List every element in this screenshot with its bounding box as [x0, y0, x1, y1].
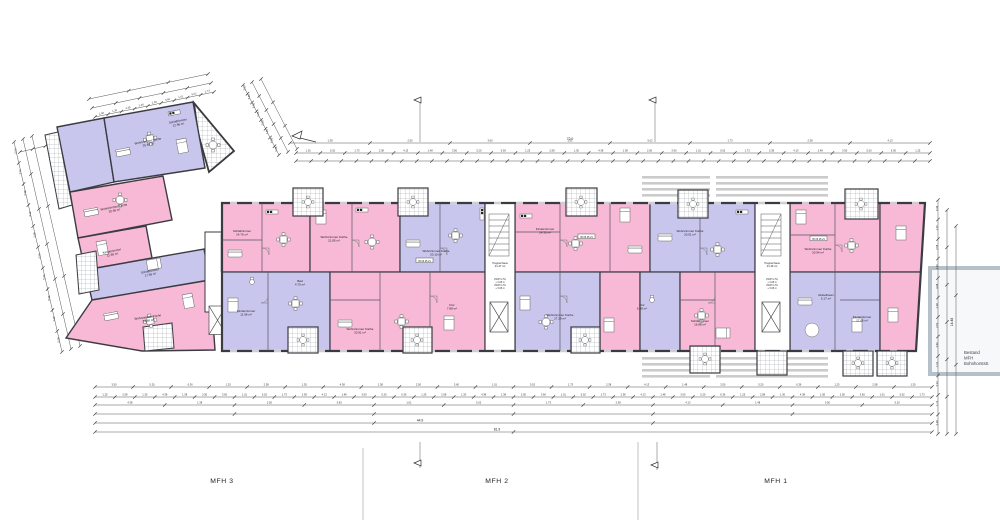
svg-text:3.60: 3.60 — [935, 342, 939, 348]
svg-text:1.01: 1.01 — [406, 401, 412, 405]
svg-text:3.50: 3.50 — [242, 85, 246, 91]
svg-text:6.36: 6.36 — [935, 205, 939, 211]
svg-text:1.38: 1.38 — [378, 383, 384, 387]
svg-text:2.50: 2.50 — [521, 393, 527, 397]
svg-text:6.36: 6.36 — [796, 383, 802, 387]
svg-text:1.73: 1.73 — [935, 400, 939, 406]
svg-text:3.50: 3.50 — [111, 383, 117, 387]
svg-text:2.50: 2.50 — [840, 393, 846, 397]
svg-text:05 06 05 21: 05 06 05 21 — [580, 236, 593, 239]
svg-text:1.38: 1.38 — [327, 139, 333, 143]
unit-pink — [600, 272, 640, 351]
svg-text:5.20: 5.20 — [150, 383, 156, 387]
svg-text:2.58: 2.58 — [760, 393, 766, 397]
svg-text:1.38: 1.38 — [623, 149, 629, 153]
existing-building-bestand: Bestand MFH Bohnhorststr. — [930, 268, 1000, 374]
svg-text:4.13: 4.13 — [887, 139, 893, 143]
svg-text:05 06 05 21: 05 06 05 21 — [812, 238, 825, 241]
svg-text:2.58: 2.58 — [441, 393, 447, 397]
svg-text:1.48: 1.48 — [818, 149, 824, 153]
svg-text:2WKT-LTG+ 3,08 m2WKT-LTG+ 3,08: 2WKT-LTG+ 3,08 m2WKT-LTG+ 3,08 m — [494, 278, 506, 290]
svg-text:2.38: 2.38 — [23, 190, 27, 196]
svg-text:3.50: 3.50 — [842, 149, 848, 153]
svg-text:5.02: 5.02 — [647, 139, 653, 143]
svg-text:1.73: 1.73 — [601, 393, 607, 397]
bestand-label-line2: MFH — [964, 356, 973, 361]
svg-text:5.02: 5.02 — [720, 149, 726, 153]
unit-pink — [680, 272, 755, 351]
svg-text:1.25: 1.25 — [52, 316, 56, 322]
svg-text:6.36: 6.36 — [891, 149, 897, 153]
svg-text:4.13: 4.13 — [793, 149, 799, 153]
svg-text:1.73: 1.73 — [745, 149, 751, 153]
svg-text:2.38: 2.38 — [379, 149, 385, 153]
svg-text:1.25: 1.25 — [102, 393, 108, 397]
svg-text:5.20: 5.20 — [700, 393, 706, 397]
svg-text:1.73: 1.73 — [354, 149, 360, 153]
unit-lavender — [104, 102, 205, 182]
balcony — [757, 351, 787, 375]
svg-text:4.38: 4.38 — [598, 149, 604, 153]
bestand-label-line1: Bestand — [964, 350, 980, 355]
svg-text:1.73: 1.73 — [568, 383, 574, 387]
svg-text:1.01: 1.01 — [242, 393, 248, 397]
svg-text:1.73: 1.73 — [727, 139, 733, 143]
svg-text:5.20: 5.20 — [381, 393, 387, 397]
svg-text:1.25: 1.25 — [915, 149, 921, 153]
svg-text:1.48: 1.48 — [428, 149, 434, 153]
svg-text:2.58: 2.58 — [260, 120, 264, 126]
svg-text:1.73: 1.73 — [18, 169, 22, 175]
unit-lavender — [640, 272, 680, 351]
svg-text:4.13: 4.13 — [644, 383, 650, 387]
svg-text:1.01: 1.01 — [935, 361, 939, 367]
svg-text:1.30: 1.30 — [910, 383, 916, 387]
svg-text:2.38: 2.38 — [935, 420, 939, 426]
floor-plan-canvas: Bestand MFH Bohnhorststr. 1.382.503.601. — [0, 0, 1000, 523]
svg-text:4.13: 4.13 — [641, 393, 647, 397]
svg-text:1.25: 1.25 — [525, 149, 531, 153]
svg-text:3.50: 3.50 — [362, 393, 368, 397]
svg-text:5.02: 5.02 — [476, 401, 482, 405]
svg-text:1.01: 1.01 — [561, 393, 567, 397]
svg-text:1.38: 1.38 — [935, 303, 939, 309]
svg-text:1.01: 1.01 — [306, 149, 312, 153]
svg-text:1.48: 1.48 — [682, 383, 688, 387]
svg-text:1.30: 1.30 — [265, 129, 269, 135]
svg-text:1.25: 1.25 — [421, 393, 427, 397]
svg-text:3.50: 3.50 — [680, 393, 686, 397]
svg-text:4.38: 4.38 — [269, 137, 273, 143]
svg-text:4.13: 4.13 — [685, 401, 691, 405]
dim-total-bottom-2: 81.9 — [494, 428, 501, 432]
north-arrow — [292, 131, 316, 142]
svg-text:1.30: 1.30 — [302, 383, 308, 387]
svg-text:2.50: 2.50 — [935, 322, 939, 328]
svg-text:5.20: 5.20 — [867, 149, 873, 153]
balcony — [76, 251, 99, 294]
svg-text:2.50: 2.50 — [407, 139, 413, 143]
svg-text:4.13: 4.13 — [322, 393, 328, 397]
svg-text:1.48: 1.48 — [660, 393, 666, 397]
dim-total-bottom-1: 44.9 — [417, 419, 424, 423]
svg-text:1.01: 1.01 — [492, 383, 498, 387]
svg-text:6.36: 6.36 — [501, 149, 507, 153]
svg-text:5.02: 5.02 — [935, 381, 939, 387]
svg-text:1.25: 1.25 — [834, 383, 840, 387]
svg-text:1.38: 1.38 — [820, 393, 826, 397]
svg-text:5.02: 5.02 — [262, 393, 268, 397]
svg-text:5.02: 5.02 — [900, 393, 906, 397]
dim-total-right: 14.48 — [950, 318, 954, 327]
svg-text:1.01: 1.01 — [696, 149, 702, 153]
svg-text:4.38: 4.38 — [340, 383, 346, 387]
svg-text:1.38: 1.38 — [182, 393, 188, 397]
svg-text:3.60: 3.60 — [337, 401, 343, 405]
svg-text:4.38: 4.38 — [481, 393, 487, 397]
svg-text:1.38: 1.38 — [501, 393, 507, 397]
svg-text:6.36: 6.36 — [401, 393, 407, 397]
svg-text:3.60: 3.60 — [454, 383, 460, 387]
svg-text:3.60: 3.60 — [487, 139, 493, 143]
svg-text:4.38: 4.38 — [127, 401, 133, 405]
svg-text:1.38: 1.38 — [197, 401, 203, 405]
svg-text:2.38: 2.38 — [621, 393, 627, 397]
svg-text:5.20: 5.20 — [42, 274, 46, 280]
svg-text:4.38: 4.38 — [162, 393, 168, 397]
svg-text:3.60: 3.60 — [222, 393, 228, 397]
label-mfh3: MFH 3 — [210, 478, 233, 485]
svg-text:1.48: 1.48 — [342, 393, 348, 397]
svg-text:2.38: 2.38 — [769, 149, 775, 153]
svg-text:2.38: 2.38 — [302, 393, 308, 397]
svg-text:2.38: 2.38 — [616, 401, 622, 405]
svg-text:3.60: 3.60 — [671, 149, 677, 153]
svg-text:1.25: 1.25 — [935, 225, 939, 231]
svg-text:2.50: 2.50 — [202, 393, 208, 397]
svg-text:1.25: 1.25 — [740, 393, 746, 397]
svg-text:1.73: 1.73 — [546, 401, 552, 405]
svg-text:3.60: 3.60 — [541, 393, 547, 397]
svg-text:05 06 05 21: 05 06 05 21 — [418, 260, 431, 263]
svg-text:6.36: 6.36 — [188, 383, 194, 387]
svg-text:6.36: 6.36 — [251, 102, 255, 108]
svg-text:6.36: 6.36 — [720, 393, 726, 397]
svg-text:2.58: 2.58 — [872, 383, 878, 387]
svg-text:2.38: 2.38 — [606, 383, 612, 387]
svg-text:2.58: 2.58 — [550, 149, 556, 153]
svg-text:1.25: 1.25 — [256, 111, 260, 117]
svg-text:1.30: 1.30 — [574, 149, 580, 153]
svg-text:2.58: 2.58 — [264, 383, 270, 387]
unit-pink — [880, 272, 921, 351]
svg-text:5.20: 5.20 — [895, 401, 901, 405]
svg-text:2.50: 2.50 — [416, 383, 422, 387]
svg-text:1.48: 1.48 — [755, 401, 761, 405]
svg-text:3.50: 3.50 — [825, 401, 831, 405]
svg-text:5.20: 5.20 — [476, 149, 482, 153]
svg-text:2.38: 2.38 — [807, 139, 813, 143]
svg-text:5.02: 5.02 — [330, 149, 336, 153]
svg-text:5.20: 5.20 — [247, 94, 251, 100]
svg-text:4.13: 4.13 — [403, 149, 409, 153]
dim-total-top: 72.0 — [567, 137, 574, 141]
svg-text:1.30: 1.30 — [780, 393, 786, 397]
svg-text:1.38: 1.38 — [274, 146, 278, 152]
svg-text:3.50: 3.50 — [452, 149, 458, 153]
svg-text:3.50: 3.50 — [720, 383, 726, 387]
label-mfh1: MFH 1 — [764, 478, 787, 485]
svg-text:1.48: 1.48 — [33, 232, 37, 238]
svg-text:4.38: 4.38 — [935, 283, 939, 289]
svg-text:6.36: 6.36 — [47, 295, 51, 301]
svg-text:4.38: 4.38 — [800, 393, 806, 397]
svg-text:2.58: 2.58 — [57, 337, 61, 343]
svg-text:1.30: 1.30 — [142, 393, 148, 397]
svg-text:2.58: 2.58 — [122, 393, 128, 397]
svg-text:3.60: 3.60 — [860, 393, 866, 397]
bestand-label-line3: Bohnhorststr. — [964, 361, 989, 366]
label-mfh2: MFH 2 — [485, 478, 508, 485]
svg-text:2.58: 2.58 — [935, 244, 939, 250]
svg-text:1.73: 1.73 — [282, 393, 288, 397]
svg-text:5.02: 5.02 — [13, 148, 17, 154]
svg-text:2.50: 2.50 — [267, 401, 273, 405]
svg-text:1.73: 1.73 — [920, 393, 926, 397]
svg-text:1.01: 1.01 — [880, 393, 886, 397]
svg-text:5.02: 5.02 — [581, 393, 587, 397]
svg-text:1.30: 1.30 — [461, 393, 467, 397]
svg-text:3.50: 3.50 — [37, 253, 41, 259]
svg-text:5.02: 5.02 — [530, 383, 536, 387]
svg-text:2.50: 2.50 — [647, 149, 653, 153]
balcony — [143, 323, 174, 351]
svg-text:1.25: 1.25 — [226, 383, 232, 387]
svg-text:4.13: 4.13 — [28, 211, 32, 217]
svg-text:1.30: 1.30 — [935, 264, 939, 270]
svg-text:2WKT-LTG+ 3,08 m2WKT-LTG+ 3,08: 2WKT-LTG+ 3,08 m2WKT-LTG+ 3,08 m — [766, 278, 778, 290]
svg-text:5.20: 5.20 — [758, 383, 764, 387]
